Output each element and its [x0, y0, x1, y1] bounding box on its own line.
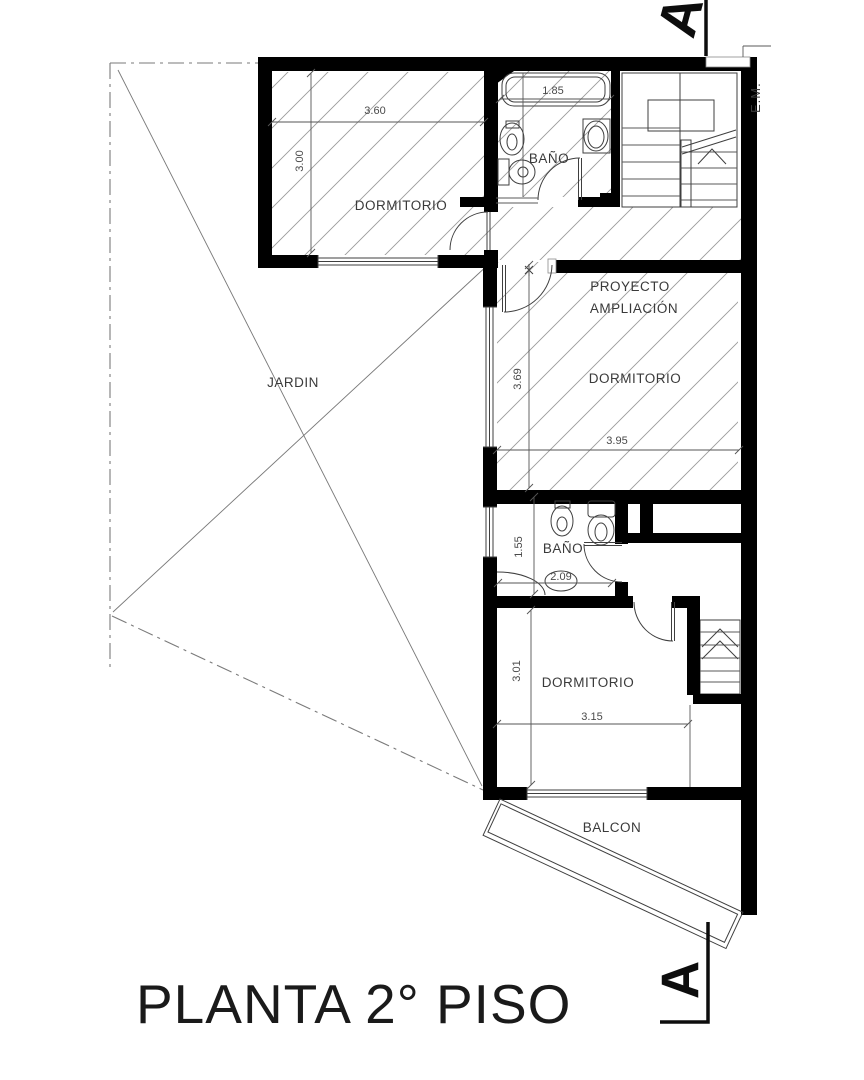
dim-dorm-low-width: 3.15 — [581, 711, 602, 723]
toilet-mid — [588, 501, 615, 545]
label-proyecto-1: PROYECTO — [590, 279, 670, 294]
label-jardin: JARDIN — [267, 375, 319, 390]
floor-plan-sheet: 3.60 3.00 1.85 3.69 3.95 1.55 2.09 3.01 … — [0, 0, 864, 1080]
floor-plan-drawing: 3.60 3.00 1.85 3.69 3.95 1.55 2.09 3.01 … — [0, 0, 864, 1080]
door-bano-mid — [584, 543, 622, 583]
meter-label: E.M. — [748, 82, 763, 113]
bidet-mid — [551, 501, 573, 536]
label-dormitorio-mid: DORMITORIO — [589, 371, 682, 386]
label-balcon: BALCON — [583, 820, 642, 835]
section-letter-top: A — [645, 0, 715, 43]
dim-bano-top-width: 1.85 — [542, 85, 563, 97]
page-title: PLANTA 2° PISO — [136, 973, 571, 1035]
door-dorm-low — [634, 602, 675, 641]
window-dorm-low — [527, 787, 647, 800]
dim-dorm-top-width: 3.60 — [364, 105, 385, 117]
label-proyecto-2: AMPLIACIÓN — [590, 301, 678, 316]
window-dorm-mid — [483, 307, 497, 447]
label-dormitorio-top: DORMITORIO — [355, 198, 448, 213]
dim-dorm-mid-height: 3.69 — [512, 368, 524, 389]
staircase-upper — [622, 73, 737, 207]
window-bano-mid — [483, 507, 497, 557]
window-dorm-top — [318, 255, 438, 268]
dim-dorm-top-height: 3.00 — [294, 150, 306, 171]
hatched-areas — [272, 71, 743, 490]
dim-dorm-low-height: 3.01 — [511, 660, 523, 681]
section-marker-top: A — [645, 0, 715, 56]
label-bano-mid: BAÑO — [543, 541, 583, 556]
meter-box-notch — [706, 57, 750, 67]
label-bano-top: BAÑO — [529, 151, 569, 166]
section-letter-bottom: A — [652, 961, 711, 999]
dim-bano-mid-height: 1.55 — [513, 536, 525, 557]
dim-bano-mid-width: 2.09 — [550, 571, 571, 583]
label-dormitorio-low: DORMITORIO — [542, 675, 635, 690]
dim-dorm-mid-width: 3.95 — [606, 435, 627, 447]
shower-arc — [497, 572, 545, 595]
